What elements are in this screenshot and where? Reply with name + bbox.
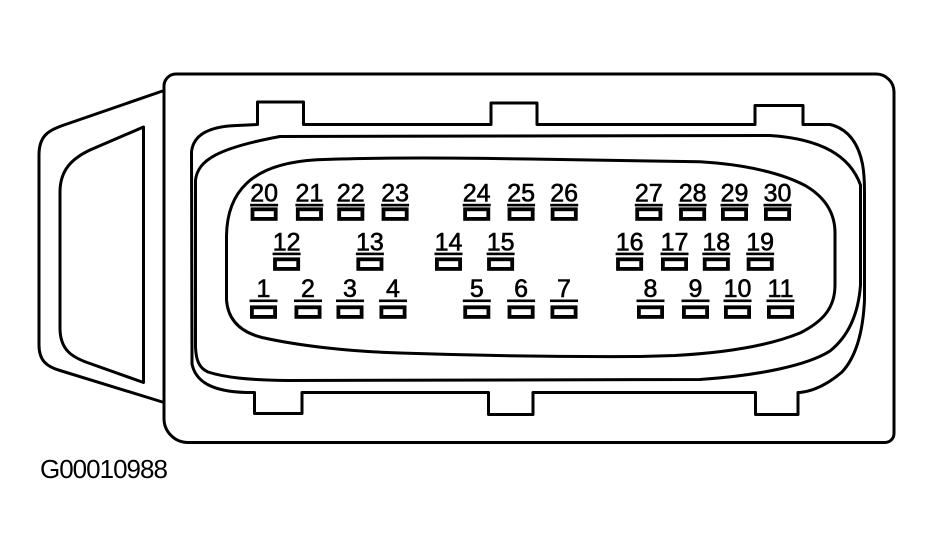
svg-text:25: 25 (507, 180, 535, 208)
svg-text:9: 9 (689, 275, 703, 303)
svg-text:21: 21 (295, 180, 323, 208)
svg-text:12: 12 (273, 228, 301, 256)
svg-text:20: 20 (250, 180, 278, 208)
svg-text:17: 17 (661, 228, 689, 256)
svg-text:27: 27 (635, 180, 663, 208)
svg-text:15: 15 (487, 228, 515, 256)
svg-text:7: 7 (557, 275, 571, 303)
svg-text:26: 26 (550, 180, 578, 208)
svg-text:23: 23 (381, 180, 409, 208)
svg-text:5: 5 (470, 275, 484, 303)
svg-text:18: 18 (702, 228, 730, 256)
svg-text:28: 28 (679, 180, 707, 208)
svg-text:24: 24 (463, 180, 491, 208)
svg-text:3: 3 (343, 275, 357, 303)
svg-text:2: 2 (301, 275, 315, 303)
svg-text:11: 11 (768, 275, 794, 303)
svg-text:29: 29 (721, 180, 749, 208)
svg-text:19: 19 (746, 228, 774, 256)
svg-text:16: 16 (616, 228, 644, 256)
svg-text:1: 1 (257, 275, 271, 303)
svg-text:10: 10 (724, 275, 752, 303)
svg-text:6: 6 (514, 275, 528, 303)
svg-text:14: 14 (435, 228, 463, 256)
svg-text:13: 13 (356, 228, 384, 256)
svg-text:4: 4 (386, 275, 400, 303)
svg-text:30: 30 (764, 180, 792, 208)
svg-text:8: 8 (644, 275, 658, 303)
svg-text:G00010988: G00010988 (40, 454, 167, 484)
svg-text:22: 22 (337, 180, 365, 208)
